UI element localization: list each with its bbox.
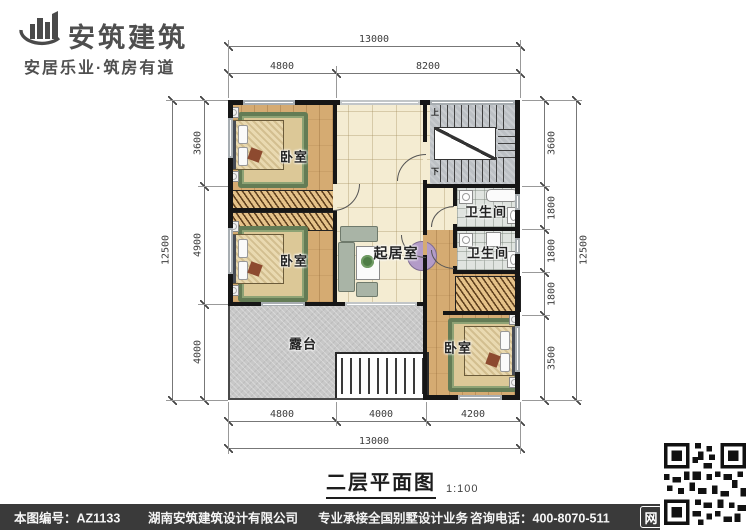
window bbox=[458, 395, 502, 400]
bed-tl bbox=[228, 120, 284, 170]
brand-logo bbox=[18, 8, 66, 52]
window bbox=[515, 326, 520, 372]
terrace-edge-bottom bbox=[228, 398, 425, 400]
window bbox=[340, 100, 420, 105]
wall-corridor bbox=[423, 255, 427, 400]
brand-tagline: 安居乐业·筑房有道 bbox=[24, 54, 175, 78]
dim-right-seg4: 1800 bbox=[544, 272, 545, 315]
room-label-bedroom-br: 卧室 bbox=[444, 338, 472, 357]
dim-bottom-total: 13000 bbox=[228, 448, 520, 449]
buildings-swoosh-icon bbox=[18, 8, 66, 52]
dim-right-seg3: 1800 bbox=[544, 229, 545, 272]
terrace-railing bbox=[335, 352, 429, 400]
wall-bath2-bottom bbox=[453, 270, 520, 274]
dim-bottom-seg3: 4200 bbox=[426, 421, 520, 422]
door-arc-bedroom bbox=[333, 184, 360, 211]
dim-right-seg1: 3600 bbox=[544, 100, 545, 186]
plan-title: 二层平面图 bbox=[326, 466, 436, 499]
wall-stair-left bbox=[423, 100, 427, 142]
window bbox=[261, 302, 305, 306]
web-badge-icon: 网 bbox=[640, 506, 662, 528]
room-label-bedroom-ml: 卧室 bbox=[280, 251, 308, 270]
dim-top-seg2: 8200 bbox=[336, 73, 520, 74]
window bbox=[515, 194, 520, 210]
room-label-living: 起居室 bbox=[374, 243, 419, 263]
phone-text: 咨询电话：400-8070-511 bbox=[470, 508, 610, 527]
sofa-top bbox=[340, 226, 378, 242]
qr-pattern bbox=[664, 443, 746, 525]
dim-left-total: 12500 bbox=[172, 100, 173, 400]
dim-right-total: 12500 bbox=[576, 100, 577, 400]
dim-right-seg5: 3500 bbox=[544, 315, 545, 400]
plant bbox=[361, 255, 374, 268]
wall-bedroom-br-top bbox=[443, 311, 520, 315]
footer-bar: 本图编号：AZ1133 湖南安筑建筑设计有限公司 专业承接全国别墅设计业务 咨询… bbox=[0, 504, 750, 530]
door-arc-stairs bbox=[397, 154, 426, 181]
window bbox=[243, 100, 295, 105]
qr-code bbox=[660, 438, 750, 530]
sofa-left bbox=[338, 242, 355, 292]
company-name: 湖南安筑建筑设计有限公司 bbox=[148, 508, 298, 527]
room-label-bath1: 卫生间 bbox=[465, 202, 507, 221]
stair-treads-lower bbox=[440, 157, 510, 182]
stair-up-label: 上 bbox=[431, 107, 439, 118]
wall-stair-bottom bbox=[423, 184, 520, 188]
stair-down-label: 下 bbox=[431, 166, 439, 177]
sofa-seat bbox=[356, 282, 378, 297]
room-label-terrace: 露台 bbox=[289, 334, 317, 353]
service-text: 专业承接全国别墅设计业务 bbox=[318, 508, 468, 527]
dim-bottom-seg1: 4800 bbox=[228, 421, 336, 422]
dim-top-total: 13000 bbox=[228, 46, 520, 47]
wall-stair-left-b bbox=[423, 180, 427, 188]
window bbox=[228, 228, 233, 274]
brand-name: 安筑建筑 bbox=[68, 16, 188, 55]
dim-right-seg2: 1800 bbox=[544, 186, 545, 229]
dim-left-seg1: 3600 bbox=[204, 100, 205, 186]
window-stair-top bbox=[430, 100, 515, 105]
wall-bath-divider bbox=[453, 227, 520, 231]
floor-plan: 上 下 卧室 卧室 起居室 卫生间 卫生间 卧室 露台 bbox=[228, 100, 520, 400]
dim-bottom-seg2: 4000 bbox=[336, 421, 426, 422]
door-arc-bath1 bbox=[431, 206, 454, 227]
stair-treads-upper bbox=[440, 104, 510, 129]
dim-left-seg2: 4900 bbox=[204, 186, 205, 304]
bathtub bbox=[486, 189, 518, 202]
wall-bedroom-divider bbox=[228, 208, 333, 212]
doc-number: 本图编号：AZ1133 bbox=[14, 508, 120, 527]
sliding-door bbox=[345, 302, 417, 306]
bed-br bbox=[464, 326, 520, 376]
sheet-title: 二层平面图 1:100 bbox=[326, 466, 479, 499]
plan-scale: 1:100 bbox=[446, 483, 479, 499]
dim-left-seg3: 4000 bbox=[204, 304, 205, 400]
dim-top-seg1: 4800 bbox=[228, 73, 336, 74]
wardrobe-bedroom-tl bbox=[228, 190, 334, 209]
terrace-edge-left bbox=[228, 306, 230, 400]
wardrobe-bedroom-br bbox=[455, 276, 521, 312]
bed-ml bbox=[228, 234, 284, 284]
window bbox=[228, 118, 233, 158]
window bbox=[515, 238, 520, 254]
room-label-bath2: 卫生间 bbox=[467, 243, 509, 262]
room-label-bedroom-tl: 卧室 bbox=[280, 147, 308, 166]
stair-landing bbox=[434, 127, 496, 160]
wall-hall-corridor-upper bbox=[423, 188, 427, 235]
